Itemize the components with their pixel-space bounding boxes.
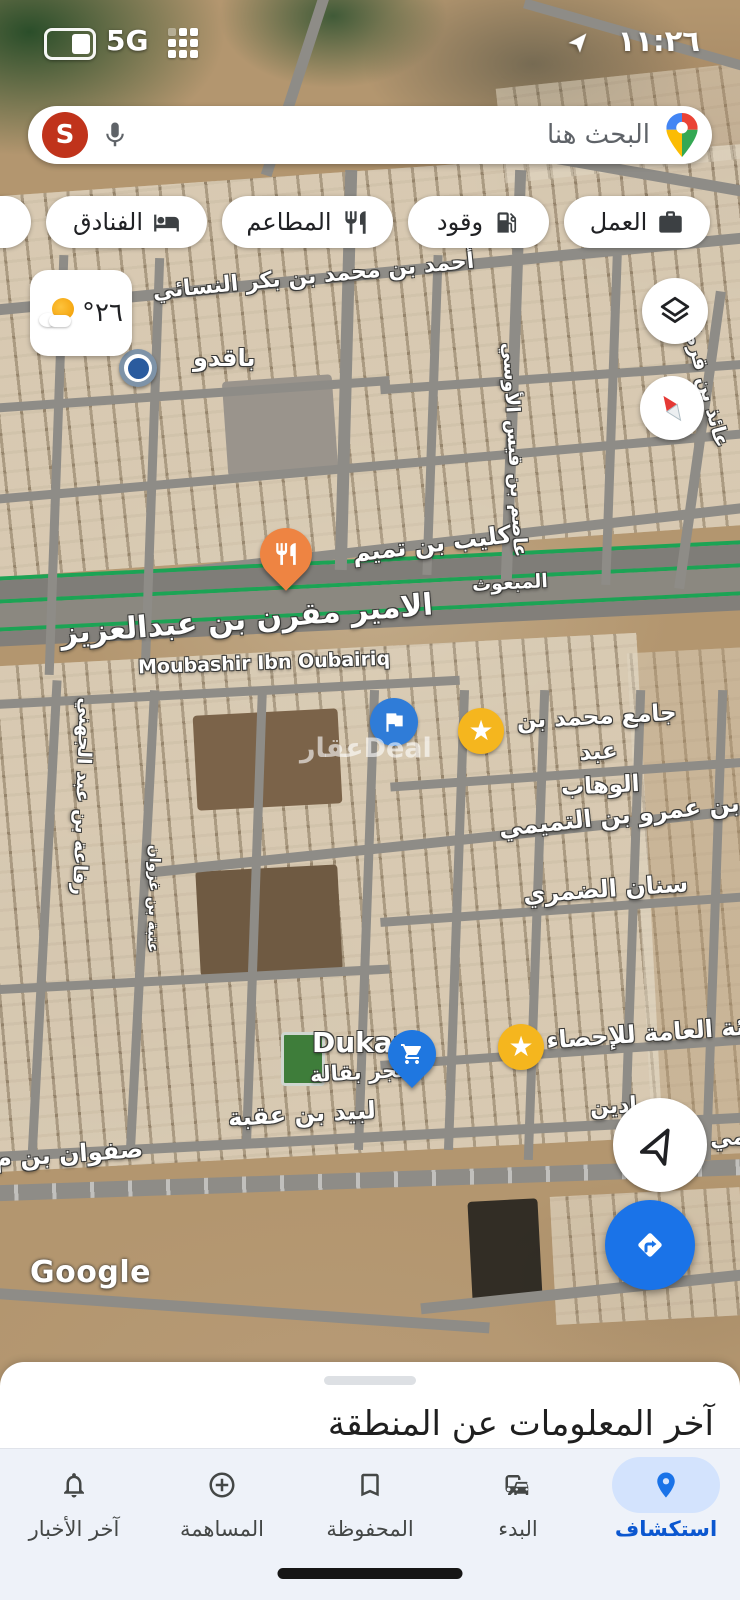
account-avatar[interactable]: S <box>42 112 88 158</box>
google-maps-pin-logo <box>666 113 698 157</box>
nav-label: استكشاف <box>615 1517 717 1541</box>
chip-label: الفنادق <box>73 208 143 236</box>
mosque-label-line1: جامع محمد بن عبد <box>503 695 691 774</box>
chip-label: وقود <box>437 208 483 236</box>
partly-cloudy-icon <box>39 297 75 329</box>
chip-hotels[interactable]: الفنادق <box>46 196 207 248</box>
nav-explore[interactable]: استكشاف <box>592 1449 740 1600</box>
directions-fab[interactable] <box>605 1200 695 1290</box>
star-icon: ★ <box>468 717 493 745</box>
chip-work[interactable]: العمل <box>564 196 710 248</box>
network-type: 5G <box>106 24 148 57</box>
nav-contribute[interactable]: المساهمة <box>148 1449 296 1600</box>
weather-chip[interactable]: ٢٦° <box>30 270 132 356</box>
home-indicator[interactable] <box>278 1568 463 1579</box>
search-bar[interactable]: البحث هنا S <box>28 106 712 164</box>
poi-dot-marker[interactable] <box>119 349 157 387</box>
nav-latest[interactable]: آخر الأخبار <box>0 1449 148 1600</box>
mic-icon[interactable] <box>100 120 130 150</box>
google-logo: Google <box>30 1255 151 1290</box>
briefcase-icon <box>657 209 684 236</box>
compass-button[interactable] <box>640 376 704 440</box>
nav-label: البدء <box>498 1517 537 1541</box>
sheet-drag-handle[interactable] <box>324 1376 416 1385</box>
status-bar: 5G ١١:٢٦ <box>0 24 740 60</box>
fuel-icon <box>493 209 520 236</box>
phone-screen: أحمد بن محمد بن بكر النسائي عائذ بن قرط … <box>0 0 740 1600</box>
nav-label: المساهمة <box>180 1517 264 1541</box>
poi-label-baqdu[interactable]: باقدو <box>193 344 256 372</box>
chip-label: المطاعم <box>246 208 331 236</box>
poi-label-mosque[interactable]: جامع محمد بن عبد الوهاب <box>503 695 693 808</box>
location-active-icon <box>563 24 597 58</box>
layers-icon <box>658 294 692 328</box>
directions-icon <box>626 1221 674 1269</box>
street-label: عتبة بن غزوان <box>144 845 164 953</box>
map-watermark: عقارDeal <box>300 733 432 764</box>
explore-pin-icon <box>651 1470 681 1500</box>
starred-place-marker[interactable]: ★ <box>498 1024 544 1070</box>
bell-icon <box>59 1470 89 1500</box>
cart-icon <box>400 1042 424 1066</box>
restaurant-icon <box>273 541 299 567</box>
search-placeholder: البحث هنا <box>142 120 650 150</box>
commute-icon <box>503 1470 533 1500</box>
active-pill <box>612 1457 720 1513</box>
poi-dot-ring <box>124 354 152 382</box>
parking-flag-icon <box>381 709 407 735</box>
restaurant-icon <box>342 209 369 236</box>
street-label: المبعوث <box>471 570 548 596</box>
add-circle-icon <box>207 1470 237 1500</box>
starred-place-marker[interactable]: ★ <box>458 708 504 754</box>
chip-restaurants[interactable]: المطاعم <box>222 196 393 248</box>
category-chips: العمل وقود المطاعم الفنادق المقا <box>0 196 740 248</box>
signal-dots-icon <box>168 28 206 56</box>
dark-building <box>467 1198 542 1302</box>
battery-icon <box>44 28 96 60</box>
my-location-button[interactable] <box>613 1098 707 1192</box>
street-label: مي <box>709 1125 740 1152</box>
empty-lot <box>195 864 342 976</box>
nav-label: آخر الأخبار <box>29 1517 120 1541</box>
poi-dot-core <box>128 358 149 379</box>
temperature: ٢٦° <box>82 298 123 328</box>
bookmark-icon <box>355 1470 385 1500</box>
nav-go[interactable]: البدء <box>444 1449 592 1600</box>
bottom-navigation: استكشاف البدء المحفوظة المساهمة آخر الأخ… <box>0 1448 740 1600</box>
nav-label: المحفوظة <box>326 1517 413 1541</box>
sheet-title: آخر المعلومات عن المنطقة <box>328 1404 714 1444</box>
star-icon: ★ <box>508 1033 533 1061</box>
layers-button[interactable] <box>642 278 708 344</box>
navigation-arrow-icon <box>630 1115 690 1175</box>
clock: ١١:٢٦ <box>618 24 700 58</box>
compass-needle-icon <box>648 384 695 431</box>
hotel-icon <box>153 209 180 236</box>
chip-label: العمل <box>590 208 648 236</box>
chip-cafes[interactable]: المقا <box>0 196 31 248</box>
chip-fuel[interactable]: وقود <box>408 196 549 248</box>
